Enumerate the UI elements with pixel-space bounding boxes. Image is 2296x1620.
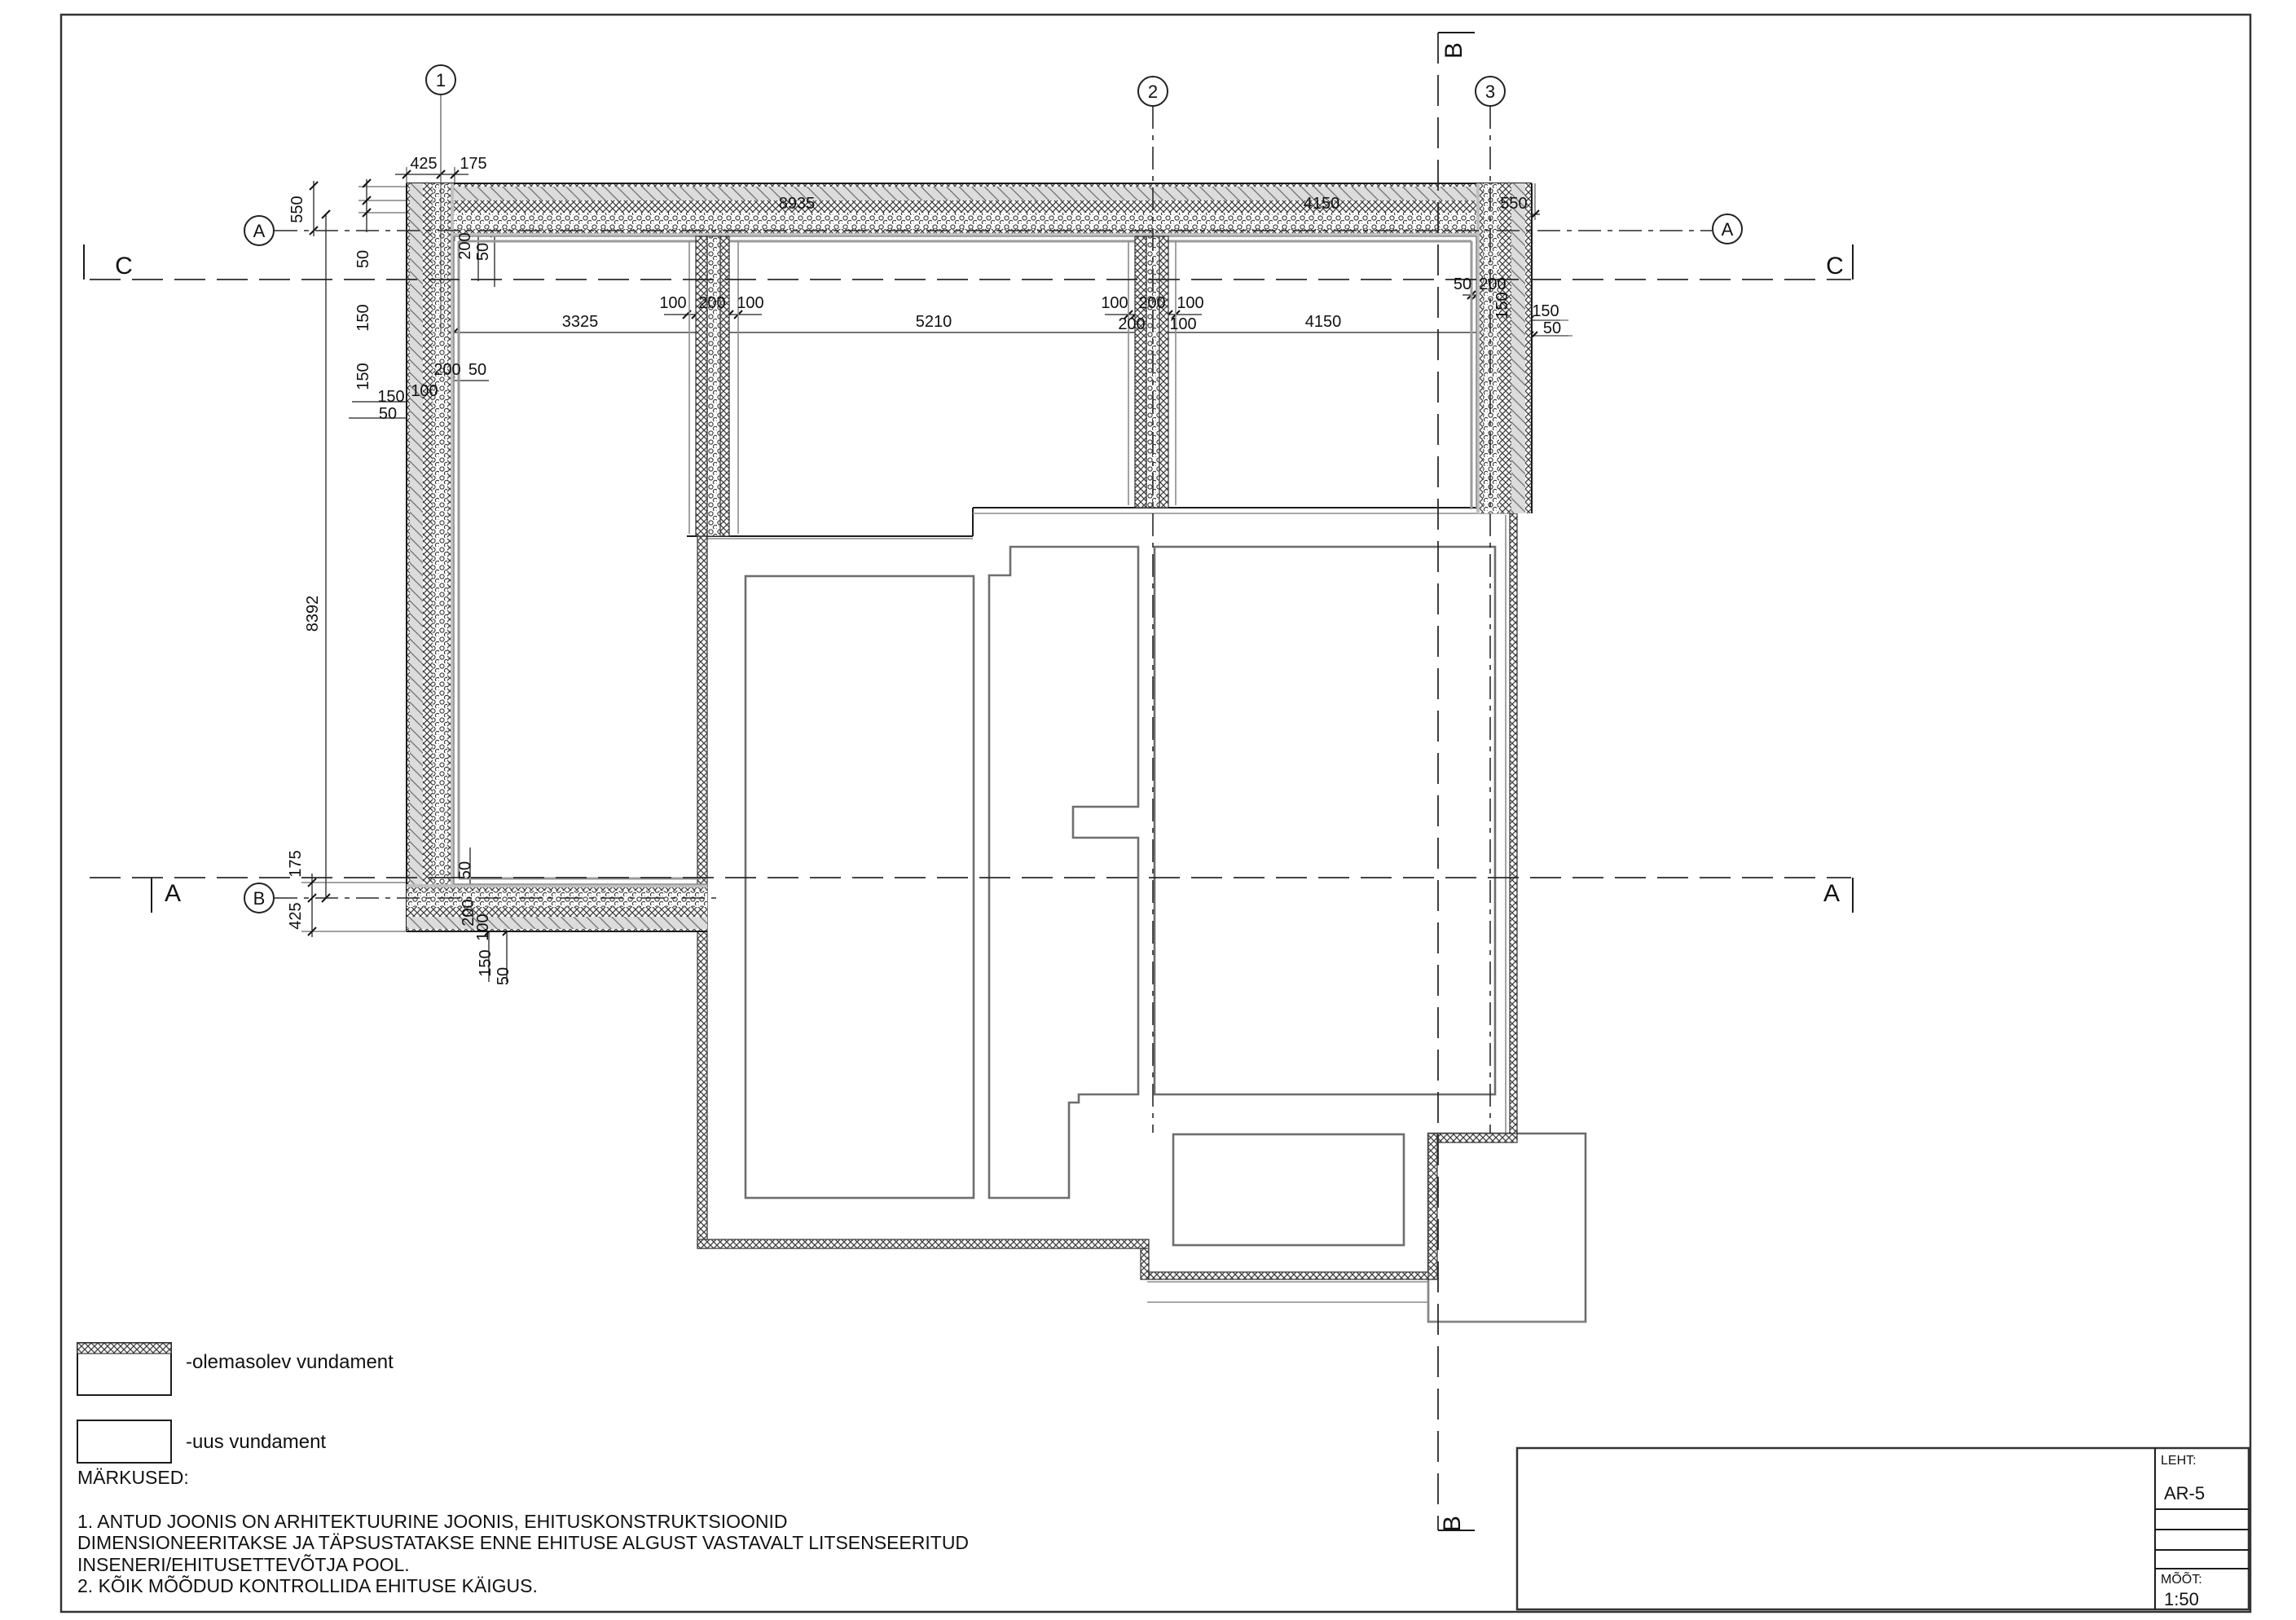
dimension-label: 50 bbox=[354, 250, 372, 268]
interior-finish-line bbox=[459, 241, 1471, 878]
foundation-wall-left bbox=[407, 183, 454, 931]
section-letters: CCAABB bbox=[115, 42, 1844, 1532]
grid-lines bbox=[84, 33, 1853, 1530]
titleblock-scale: 1:50 bbox=[2164, 1589, 2199, 1610]
dimension-label: 150 bbox=[1493, 292, 1511, 319]
section-letter: A bbox=[165, 880, 181, 907]
title-block bbox=[1517, 1448, 2249, 1609]
titleblock-sheet-number: AR-5 bbox=[2164, 1483, 2205, 1504]
dimension-label: 3325 bbox=[562, 313, 599, 331]
dimension-label: 150 bbox=[354, 304, 372, 331]
foundation-plan-svg: 123AAB CCAABB 42517589354150550550501501… bbox=[0, 0, 2296, 1620]
dimension-label: 150 bbox=[354, 363, 372, 390]
dimension-label: 150 bbox=[477, 949, 495, 976]
grid-bubble-label: 2 bbox=[1148, 81, 1158, 102]
room-right bbox=[1155, 547, 1495, 1094]
partition-wall-2 bbox=[1128, 236, 1176, 508]
note-line: 2. KÕIK MÕÕDUD KONTROLLIDA EHITUSE KÄIGU… bbox=[77, 1575, 969, 1596]
dimension-label: 50 bbox=[468, 361, 486, 379]
dimension-lines bbox=[301, 167, 1572, 982]
legend-existing-swatch bbox=[77, 1343, 171, 1395]
notes-heading: MÄRKUSED: bbox=[77, 1467, 969, 1488]
titleblock-leht-label: LEHT: bbox=[2161, 1454, 2197, 1468]
grid-bubble-label: B bbox=[253, 888, 266, 909]
dimension-label: 4150 bbox=[1305, 313, 1342, 331]
dimension-label: 50 bbox=[474, 243, 492, 261]
dimension-label: 150 bbox=[1532, 302, 1559, 320]
dimension-label: 8392 bbox=[304, 596, 322, 632]
dimension-label: 200 bbox=[1118, 315, 1145, 333]
grid-bubble-label: 1 bbox=[436, 70, 446, 90]
legend-new-swatch bbox=[77, 1420, 171, 1463]
foundation-wall-bottom bbox=[407, 884, 707, 931]
foundation-wall-right bbox=[1476, 183, 1532, 513]
section-letter: B bbox=[1439, 1516, 1466, 1532]
foundation-wall-top bbox=[407, 183, 1532, 236]
section-letter: C bbox=[1826, 253, 1844, 280]
note-line: INSENERI/EHITUSETTEVÕTJA POOL. bbox=[77, 1554, 969, 1575]
legend-swatches bbox=[77, 1343, 171, 1463]
dimension-label: 100 bbox=[737, 294, 763, 312]
dimension-label: 5210 bbox=[916, 313, 952, 331]
notes-block: MÄRKUSED: 1. ANTUD JOONIS ON ARHITEKTUUR… bbox=[77, 1467, 969, 1596]
room-left bbox=[746, 576, 974, 1198]
room-outlines bbox=[746, 547, 1495, 1245]
existing-foundation-edge-bands bbox=[697, 513, 1517, 1279]
dimension-label: 100 bbox=[1101, 294, 1128, 312]
dimension-label: 4150 bbox=[1304, 195, 1340, 213]
dimension-label: 100 bbox=[659, 294, 686, 312]
room-middle bbox=[989, 547, 1138, 1198]
dimension-label: 100 bbox=[1169, 315, 1196, 333]
room-small-bottom bbox=[1173, 1134, 1404, 1245]
dimension-label: 8935 bbox=[779, 195, 816, 213]
dimension-label: 425 bbox=[287, 902, 305, 929]
existing-building-outline bbox=[687, 508, 1586, 1322]
dimension-label: 50 bbox=[1543, 319, 1561, 337]
dimension-label: 200 bbox=[1479, 275, 1506, 293]
dimension-label: 50 bbox=[1454, 275, 1471, 293]
grid-bubble-label: A bbox=[1722, 219, 1734, 240]
dimension-label: 550 bbox=[288, 196, 306, 222]
grid-bubble-label: A bbox=[253, 221, 266, 241]
dimension-label: 175 bbox=[460, 155, 486, 173]
legend-new-label: -uus vundament bbox=[186, 1431, 326, 1454]
note-line: DIMENSIONEERITAKSE JA TÄPSUSTATAKSE ENNE… bbox=[77, 1532, 969, 1553]
dimension-label: 100 bbox=[474, 913, 492, 940]
drawing-sheet: 123AAB CCAABB 42517589354150550550501501… bbox=[0, 0, 2296, 1620]
dimension-label: 175 bbox=[287, 850, 305, 877]
dimension-label: 200 bbox=[1138, 294, 1165, 312]
section-letter: C bbox=[115, 253, 133, 280]
grid-bubble-label: 3 bbox=[1485, 81, 1495, 102]
dimension-label: 50 bbox=[456, 861, 474, 879]
titleblock-moot-label: MÕÕT: bbox=[2161, 1573, 2202, 1587]
dimension-label: 150 bbox=[377, 388, 404, 406]
note-line: 1. ANTUD JOONIS ON ARHITEKTUURINE JOONIS… bbox=[77, 1511, 969, 1532]
existing-building-lower-right-room bbox=[1428, 1134, 1586, 1322]
dimension-label: 200 bbox=[698, 294, 725, 312]
section-letter: A bbox=[1823, 880, 1840, 907]
dimension-label: 200 bbox=[433, 361, 460, 379]
dimension-label: 50 bbox=[495, 967, 512, 985]
dimension-label: 100 bbox=[1177, 294, 1203, 312]
section-letter: B bbox=[1440, 42, 1467, 59]
dimension-label: 50 bbox=[379, 405, 397, 423]
dimension-label: 550 bbox=[1500, 195, 1527, 213]
dimension-label: 200 bbox=[456, 232, 474, 259]
partition-wall-1 bbox=[689, 236, 738, 536]
legend-existing-label: -olemasolev vundament bbox=[186, 1351, 394, 1374]
dimension-label: 425 bbox=[410, 155, 437, 173]
dimension-label: 100 bbox=[411, 382, 438, 400]
